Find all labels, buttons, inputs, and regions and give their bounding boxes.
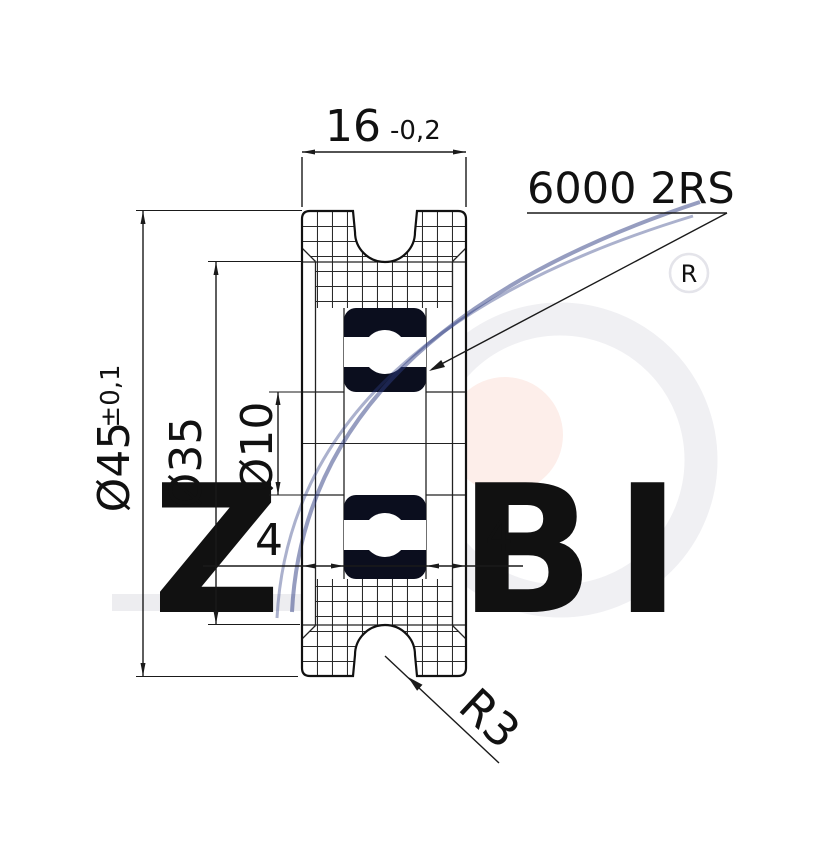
dim-offset-left-label: 4 [255, 515, 283, 566]
dim-groove-radius-label: R3 [449, 678, 531, 759]
pulley-section-drawing: ZABI R [0, 0, 824, 868]
dim-width-tolerance-label: -0,2 [390, 116, 441, 146]
registered-trademark-icon: R [670, 254, 708, 292]
technical-drawing-page: ZABI R [0, 0, 824, 868]
bearing-ball-icon [363, 513, 407, 557]
dim-width-label: 16 [325, 101, 381, 152]
bearing-designation-label: 6000 2RS [527, 164, 735, 214]
dim-outer-diameter-tolerance-label: ±0,1 [96, 364, 126, 427]
dim-offset-right-label: 4 [485, 511, 513, 562]
dim-bore-diameter-label: Ø10 [232, 402, 283, 493]
dim-outer-diameter-label: Ø45 [89, 422, 140, 513]
svg-text:R: R [681, 260, 698, 288]
dim-groove-diameter-label: Ø35 [161, 417, 212, 508]
